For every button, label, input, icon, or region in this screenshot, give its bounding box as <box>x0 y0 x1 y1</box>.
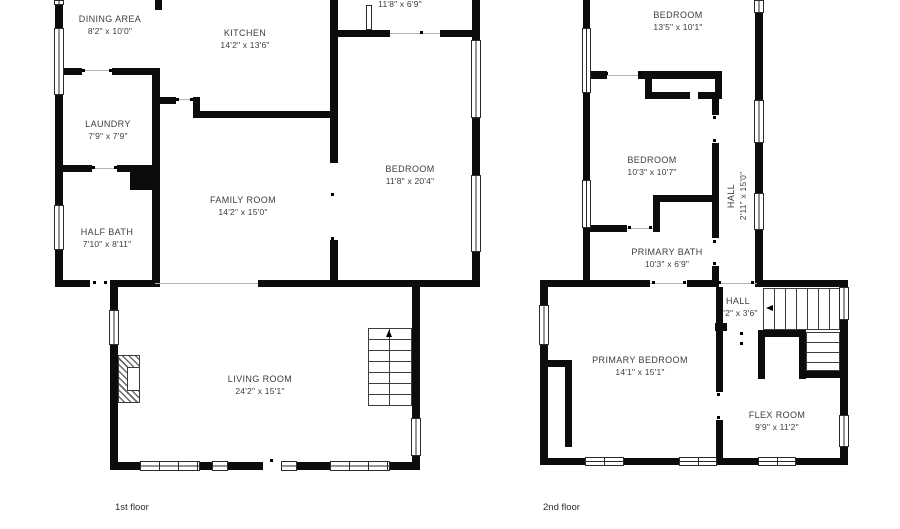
opening-line <box>82 70 112 71</box>
wall <box>755 13 763 100</box>
wall <box>716 420 723 465</box>
wall <box>472 0 480 40</box>
room-label-primary-bedroom: PRIMARY BEDROOM 14'1" x 15'1" <box>592 354 688 378</box>
window <box>582 28 591 93</box>
room-name: FLEX ROOM <box>749 409 806 421</box>
door-mark <box>652 281 655 284</box>
wall <box>540 345 548 462</box>
room-dims: 11'8" x 6'9" <box>378 0 422 10</box>
window <box>758 457 796 466</box>
door-mark <box>683 281 686 284</box>
wall <box>412 456 420 462</box>
window <box>140 461 200 471</box>
wall <box>624 458 679 465</box>
room-name: PRIMARY BATH <box>631 246 702 258</box>
door-mark <box>114 166 117 169</box>
wall <box>338 30 390 37</box>
floor-caption-2nd: 2nd floor <box>543 502 580 513</box>
door-mark <box>713 240 716 243</box>
wall <box>297 462 330 470</box>
window <box>754 100 764 143</box>
room-dims: 10'3" x 6'9" <box>631 258 702 270</box>
room-label-half-bath: HALF BATH 7'10" x 8'11" <box>81 226 133 250</box>
wall <box>200 462 212 470</box>
room-label-hall-lower: HALL 3'2" x 3'6" <box>718 295 757 319</box>
door-mark <box>740 332 743 335</box>
room-dims: 8'2" x 10'0" <box>79 25 141 37</box>
window <box>582 180 591 228</box>
door-mark <box>176 98 179 101</box>
wall <box>540 287 548 305</box>
window <box>471 175 481 252</box>
door-mark <box>639 72 642 75</box>
room-label-family-room: FAMILY ROOM 14'2" x 15'0" <box>210 194 276 218</box>
wall <box>687 280 715 287</box>
wall <box>155 0 162 10</box>
wall <box>583 93 590 180</box>
floor-caption-1st: 1st floor <box>115 502 149 513</box>
room-dims: 24'2" x 15'1" <box>228 385 292 397</box>
opening-line <box>155 283 258 284</box>
room-label-upper-room: 11'8" x 6'9" <box>378 0 422 10</box>
room-name: LAUNDRY <box>85 118 131 130</box>
room-name: HALF BATH <box>81 226 133 238</box>
wall <box>117 165 160 172</box>
door-mark <box>270 459 273 462</box>
room-name: BEDROOM <box>653 9 702 21</box>
room-dims: 14'2" x 15'0" <box>210 206 276 218</box>
door-mark <box>713 139 716 142</box>
wall <box>548 360 572 367</box>
door-leaf <box>366 5 372 30</box>
window <box>754 193 764 230</box>
window <box>54 0 64 5</box>
room-name: FAMILY ROOM <box>210 194 276 206</box>
room-dims: 11'8" x 20'4" <box>385 175 434 187</box>
door-mark <box>420 31 423 34</box>
window <box>754 0 764 13</box>
room-name: LIVING ROOM <box>228 373 292 385</box>
wall <box>55 4 63 28</box>
wall <box>653 195 660 232</box>
window <box>585 457 624 466</box>
wall <box>712 143 719 238</box>
wall <box>156 97 176 104</box>
wall <box>55 280 90 287</box>
wall <box>717 458 758 465</box>
room-name: DINING AREA <box>79 13 141 25</box>
door-mark <box>109 69 112 72</box>
wall <box>472 118 480 175</box>
room-name: HALL <box>718 295 757 307</box>
window <box>679 457 717 466</box>
room-dims: 7'9" x 7'9" <box>85 130 131 142</box>
opening-line <box>607 75 638 76</box>
wall <box>799 337 806 379</box>
room-label-bedroom-top: BEDROOM 13'5" x 10'1" <box>653 9 702 33</box>
wall <box>440 30 472 37</box>
door-mark <box>190 98 193 101</box>
wall <box>258 280 480 287</box>
staircase-2f-upper-flight <box>763 288 840 330</box>
window <box>109 310 119 345</box>
door-mark <box>104 281 107 284</box>
door-mark <box>713 262 716 265</box>
wall <box>110 462 140 470</box>
window <box>839 287 849 320</box>
wall <box>193 97 200 118</box>
room-name: BEDROOM <box>385 163 434 175</box>
window <box>54 28 64 95</box>
door-mark <box>92 166 95 169</box>
wall <box>390 462 420 470</box>
wall <box>228 462 263 470</box>
wall <box>330 0 338 163</box>
wall <box>660 195 716 202</box>
room-label-living-room: LIVING ROOM 24'2" x 15'1" <box>228 373 292 397</box>
door-mark <box>82 69 85 72</box>
room-dims: 9'9" x 11'2" <box>749 421 806 433</box>
door-mark <box>717 393 720 396</box>
staircase-2f-lower-flight <box>806 332 840 371</box>
room-label-bedroom-mid: BEDROOM 10'3" x 10'7" <box>627 154 676 178</box>
wall <box>130 172 160 190</box>
room-dims: 14'1" x 15'1" <box>592 366 688 378</box>
door-mark <box>605 72 608 75</box>
wall <box>110 287 118 310</box>
room-dims: 13'5" x 10'1" <box>653 21 702 33</box>
wall <box>755 143 763 193</box>
room-label-bedroom-1f: BEDROOM 11'8" x 20'4" <box>385 163 434 187</box>
window <box>281 461 297 471</box>
wall <box>583 228 590 287</box>
wall <box>55 95 63 205</box>
wall <box>55 165 92 172</box>
wall <box>712 98 719 115</box>
room-label-laundry: LAUNDRY 7'9" x 7'9" <box>85 118 131 142</box>
door-mark <box>649 226 652 229</box>
window <box>411 418 421 456</box>
room-dims: 10'3" x 10'7" <box>627 166 676 178</box>
door-mark <box>93 281 96 284</box>
wall <box>110 345 118 462</box>
window <box>212 461 228 471</box>
room-dims: 7'10" x 8'11" <box>81 238 133 250</box>
wall <box>200 111 331 118</box>
door-mark <box>718 281 721 284</box>
fireplace-firebox <box>127 367 140 391</box>
wall <box>645 92 690 99</box>
wall <box>758 330 806 337</box>
door-mark <box>331 237 334 240</box>
room-label-hall-upper: HALL 2'11" x 15'0" <box>725 172 749 221</box>
window <box>471 40 481 118</box>
room-name: KITCHEN <box>220 27 269 39</box>
wall <box>755 230 763 287</box>
wall <box>715 323 727 331</box>
wall <box>565 367 572 447</box>
wall <box>540 458 585 465</box>
opening-line <box>390 33 440 34</box>
room-label-primary-bath: PRIMARY BATH 10'3" x 6'9" <box>631 246 702 270</box>
door-mark <box>331 193 334 196</box>
wall <box>716 287 723 392</box>
opening-line <box>650 283 687 284</box>
wall <box>840 447 848 465</box>
wall <box>152 190 160 287</box>
floor-plan-canvas: 11'8" x 6'9" DINING AREA 8'2" x 10'0" KI… <box>0 0 900 529</box>
stairs-direction-arrow-icon <box>766 305 773 311</box>
window <box>54 205 64 250</box>
wall <box>412 287 420 418</box>
wall <box>583 0 590 28</box>
staircase-1f <box>368 328 412 406</box>
room-name: PRIMARY BEDROOM <box>592 354 688 366</box>
door-mark <box>717 416 720 419</box>
door-mark <box>628 226 631 229</box>
door-mark <box>713 116 716 119</box>
room-dims: 2'11" x 15'0" <box>737 172 749 221</box>
wall <box>152 68 160 172</box>
room-label-flex-room: FLEX ROOM 9'9" x 11'2" <box>749 409 806 433</box>
wall <box>757 280 848 287</box>
wall <box>758 337 765 379</box>
wall <box>840 320 848 415</box>
stairs-up-arrow-icon <box>386 330 392 337</box>
room-name: BEDROOM <box>627 154 676 166</box>
wall <box>540 280 650 287</box>
room-dims: 14'2" x 13'6" <box>220 39 269 51</box>
room-dims: 3'2" x 3'6" <box>718 307 757 319</box>
wall <box>638 71 722 79</box>
room-name: HALL <box>725 172 737 221</box>
window <box>539 305 549 345</box>
window <box>330 461 390 471</box>
door-mark <box>751 281 754 284</box>
room-label-dining-area: DINING AREA 8'2" x 10'0" <box>79 13 141 37</box>
door-mark <box>740 342 743 345</box>
room-label-kitchen: KITCHEN 14'2" x 13'6" <box>220 27 269 51</box>
wall <box>806 371 848 378</box>
window <box>839 415 849 447</box>
wall <box>110 280 155 287</box>
